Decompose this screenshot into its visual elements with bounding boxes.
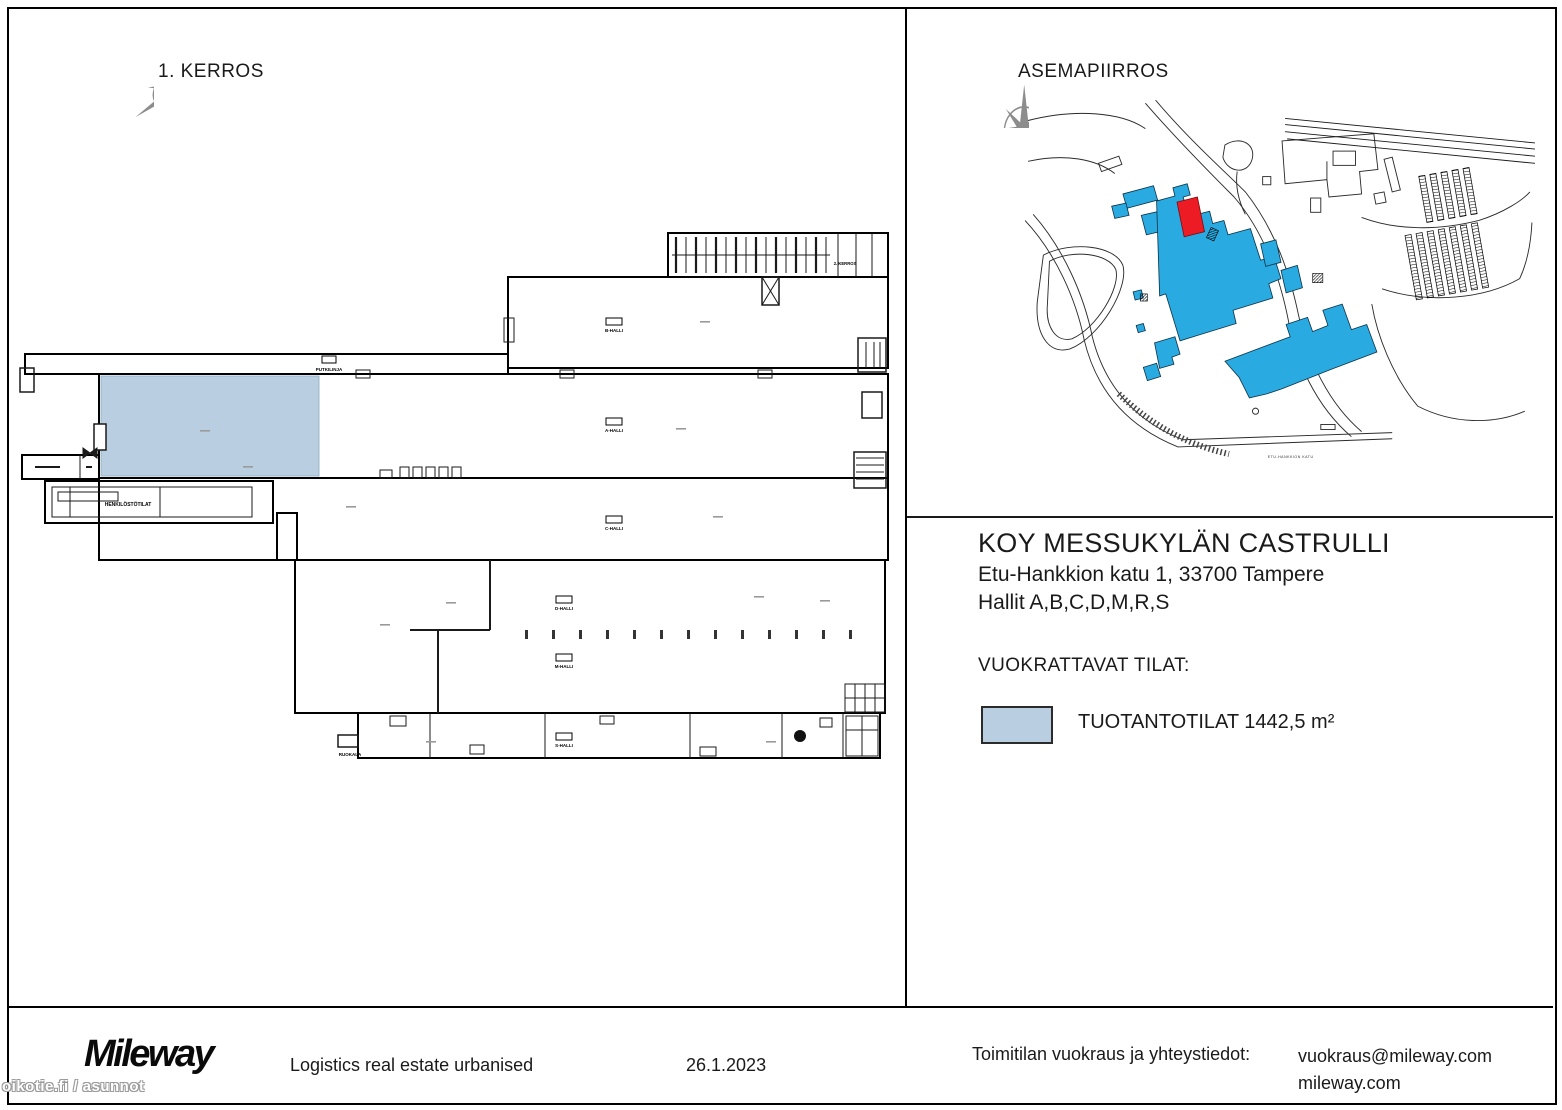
pipeline-label: PUTKILINJA (316, 367, 343, 372)
canteen-label: RUOKALA (339, 752, 362, 757)
office-floor-label: 2. KERROS (834, 261, 857, 266)
contact-heading: Toimitilan vuokraus ja yhteystiedot: (972, 1044, 1250, 1065)
plan-document-page: 1. KERROS (0, 0, 1562, 1110)
hall-label: D-HALLI (555, 606, 573, 611)
property-halls: Hallit A,B,C,D,M,R,S (978, 591, 1169, 615)
column-marks (525, 630, 852, 639)
street-label: ETU-HANKKION KATU (1268, 455, 1314, 459)
contact-email: vuokraus@mileway.com (1298, 1043, 1492, 1070)
watermark: oikotie.fi / asunnot (2, 1078, 145, 1095)
footer-tagline: Logistics real estate urbanised (290, 1055, 533, 1076)
rentable-spaces-heading: VUOKRATTAVAT TILAT: (978, 655, 1190, 677)
contact-website: mileway.com (1298, 1070, 1492, 1097)
hall-label: A-HALLI (605, 428, 623, 433)
legend-label: TUOTANTOTILAT 1442,5 m² (1078, 711, 1334, 734)
staff-area-label: HENKILÖSTÖTILAT (105, 501, 152, 508)
property-address: Etu-Hankkion katu 1, 33700 Tampere (978, 563, 1324, 587)
hall-label: S-HALLI (555, 743, 573, 748)
property-buildings (1112, 184, 1377, 398)
strip-feature-circle (794, 730, 806, 742)
contact-details: vuokraus@mileway.com mileway.com (1298, 1043, 1492, 1097)
mileway-logo: Mileway (84, 1033, 212, 1076)
highlighted-rentable-area (101, 376, 319, 476)
railway-lines (1285, 118, 1535, 163)
hall-label-boxes (322, 318, 622, 740)
site-plan-drawing: ETU-HANKKION KATU (1025, 100, 1535, 498)
hall-label: M-HALLI (555, 664, 574, 669)
hall-label: B-HALLI (605, 328, 623, 333)
right-panel-divider (907, 516, 1553, 518)
panel-divider (905, 9, 907, 1008)
compass-rose-icon (933, 28, 1029, 128)
hall-label: C-HALLI (605, 526, 623, 531)
parking-rows (1405, 167, 1489, 299)
document-date: 26.1.2023 (686, 1055, 766, 1076)
floor-plan-drawing: B-HALLI A-HALLI C-HALLI D-HALLI M-HALLI … (0, 0, 905, 1008)
site-plan-title: ASEMAPIIRROS (1018, 61, 1169, 83)
property-name: KOY MESSUKYLÄN CASTRULLI (978, 528, 1390, 559)
legend-swatch (981, 706, 1053, 744)
